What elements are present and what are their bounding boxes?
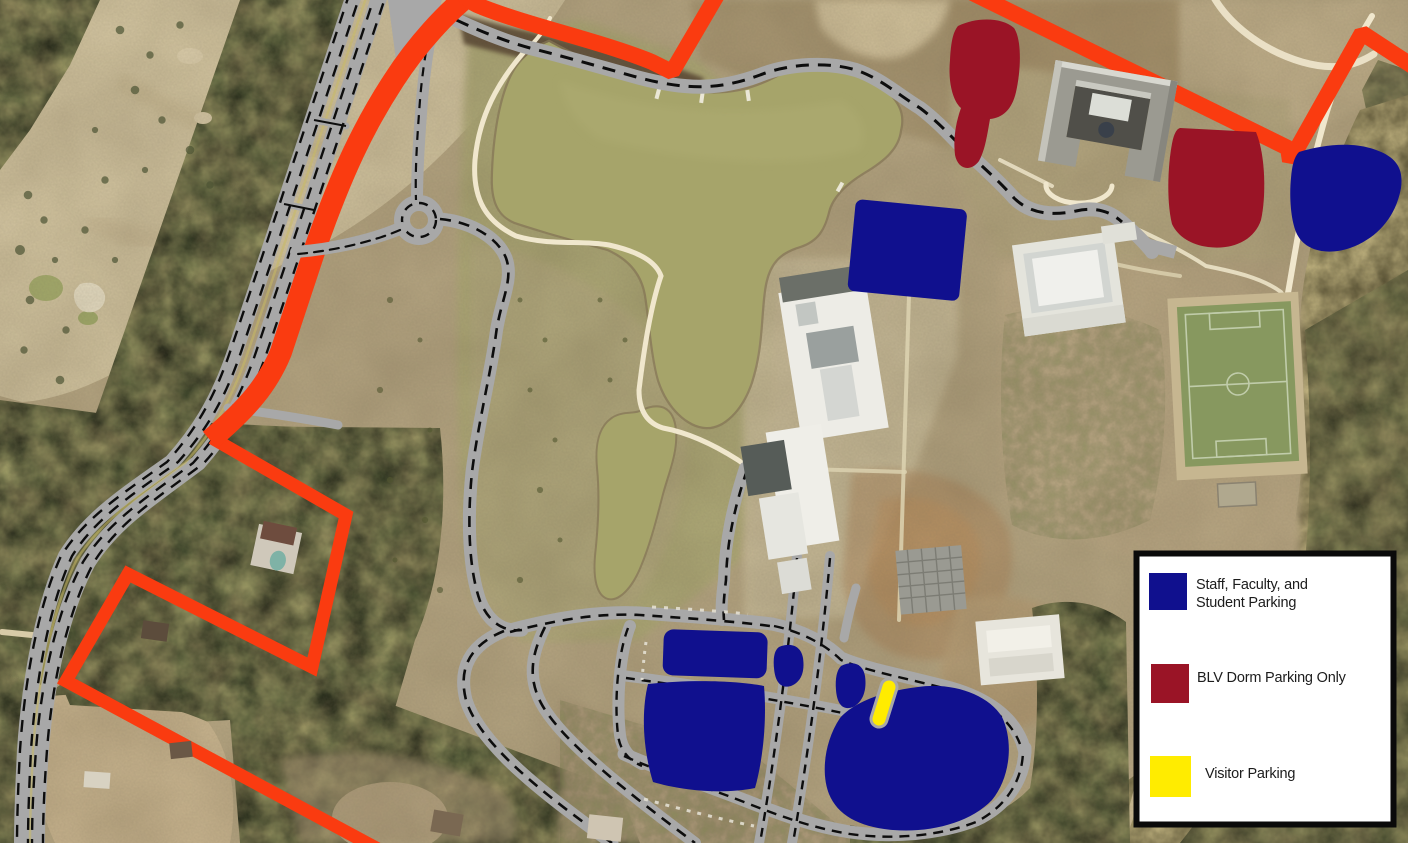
svg-text:BLV Dorm Parking Only: BLV Dorm Parking Only xyxy=(1197,670,1347,686)
svg-text:Visitor Parking: Visitor Parking xyxy=(1205,766,1295,782)
svg-text:Staff, Faculty, and: Staff, Faculty, and xyxy=(1196,577,1308,593)
svg-text:Student Parking: Student Parking xyxy=(1196,595,1296,611)
